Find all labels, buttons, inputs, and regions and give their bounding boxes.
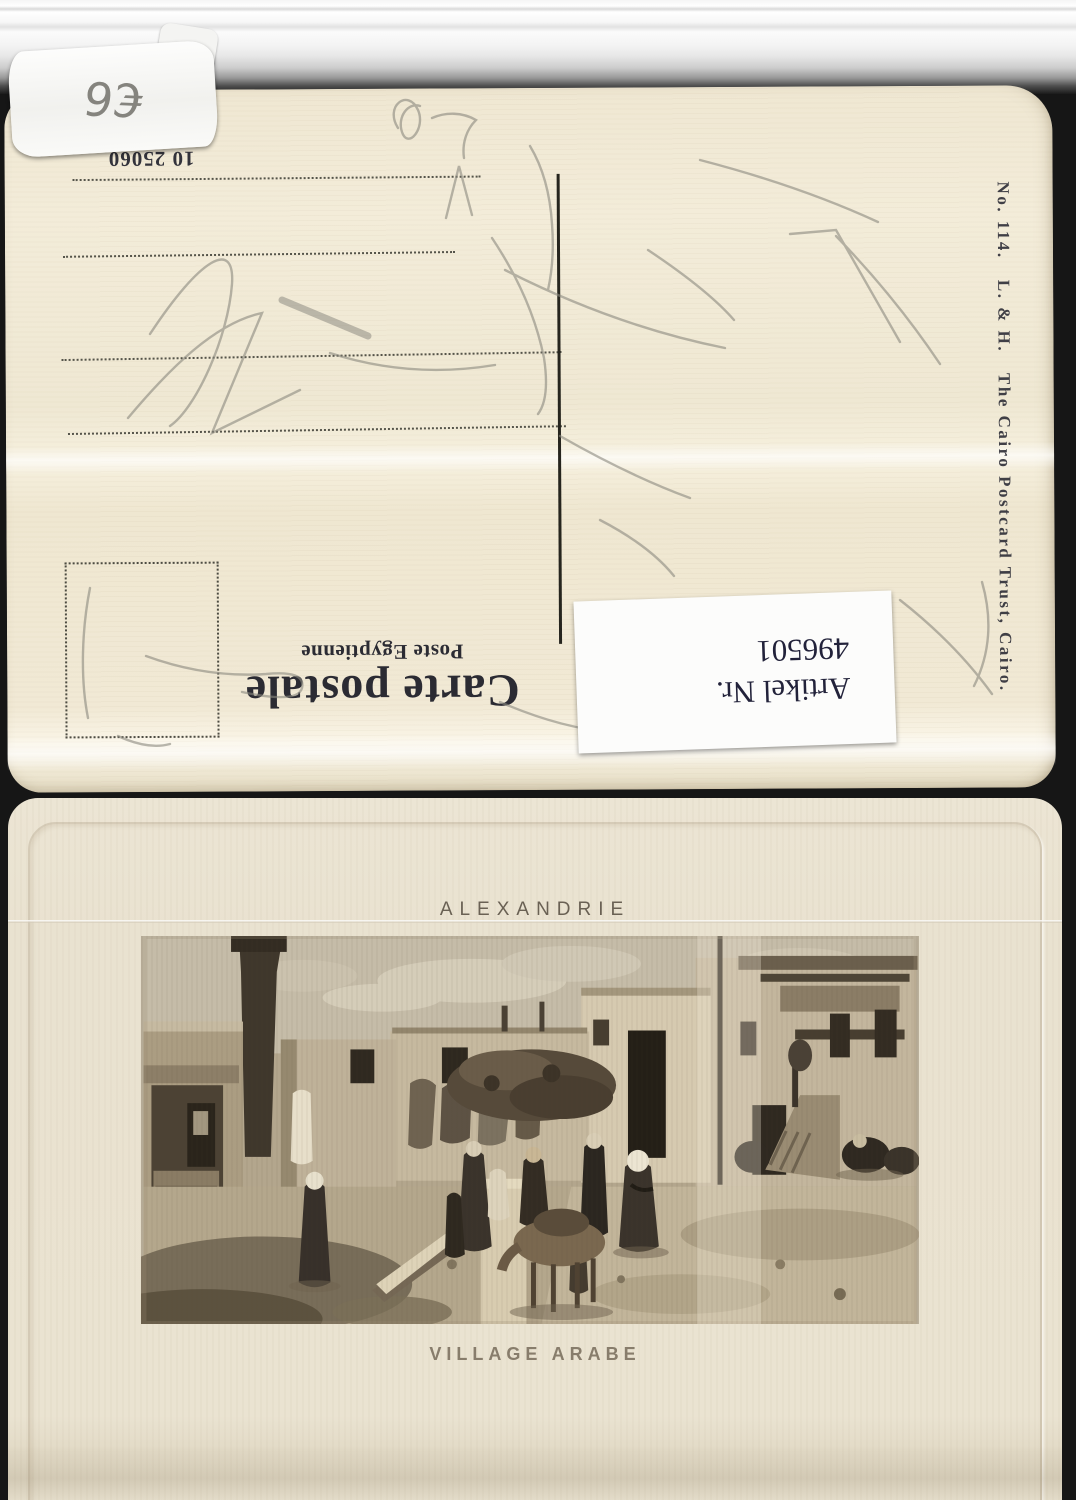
card-heading-block: Carte postale Poste Egyptienne [167, 638, 597, 717]
message-address-divider [557, 174, 562, 644]
price-sticker: €6 [7, 40, 219, 158]
publisher-imprint: No. 114. L. & H. The Cairo Postcard Trus… [993, 181, 1016, 753]
postcard-title: ALEXANDRIE [8, 899, 1062, 921]
address-line [73, 176, 481, 182]
card-heading: Carte postale [167, 666, 597, 717]
card-bottom-shade [8, 1446, 1062, 1500]
village-photograph [141, 936, 919, 1324]
scanned-postcard-listing: 10 25060 Carte postale Poste Egyptienne … [0, 0, 1076, 1500]
photo-grain [141, 936, 919, 1324]
postcard-caption: VILLAGE ARABE [8, 1344, 1062, 1365]
article-number-label: Artikel Nr. 496501 [573, 590, 896, 753]
postcard-front: ALEXANDRIE [8, 798, 1062, 1500]
postcard-back: 10 25060 Carte postale Poste Egyptienne … [4, 85, 1056, 792]
paper-fold-highlight [6, 441, 1054, 474]
handwritten-price: €6 [80, 71, 147, 127]
address-line [63, 251, 455, 258]
address-line [62, 351, 562, 361]
article-number-text: Artikel Nr. 496501 [573, 590, 896, 753]
card-subheading: Poste Egyptienne [167, 638, 597, 665]
address-line [68, 425, 566, 435]
